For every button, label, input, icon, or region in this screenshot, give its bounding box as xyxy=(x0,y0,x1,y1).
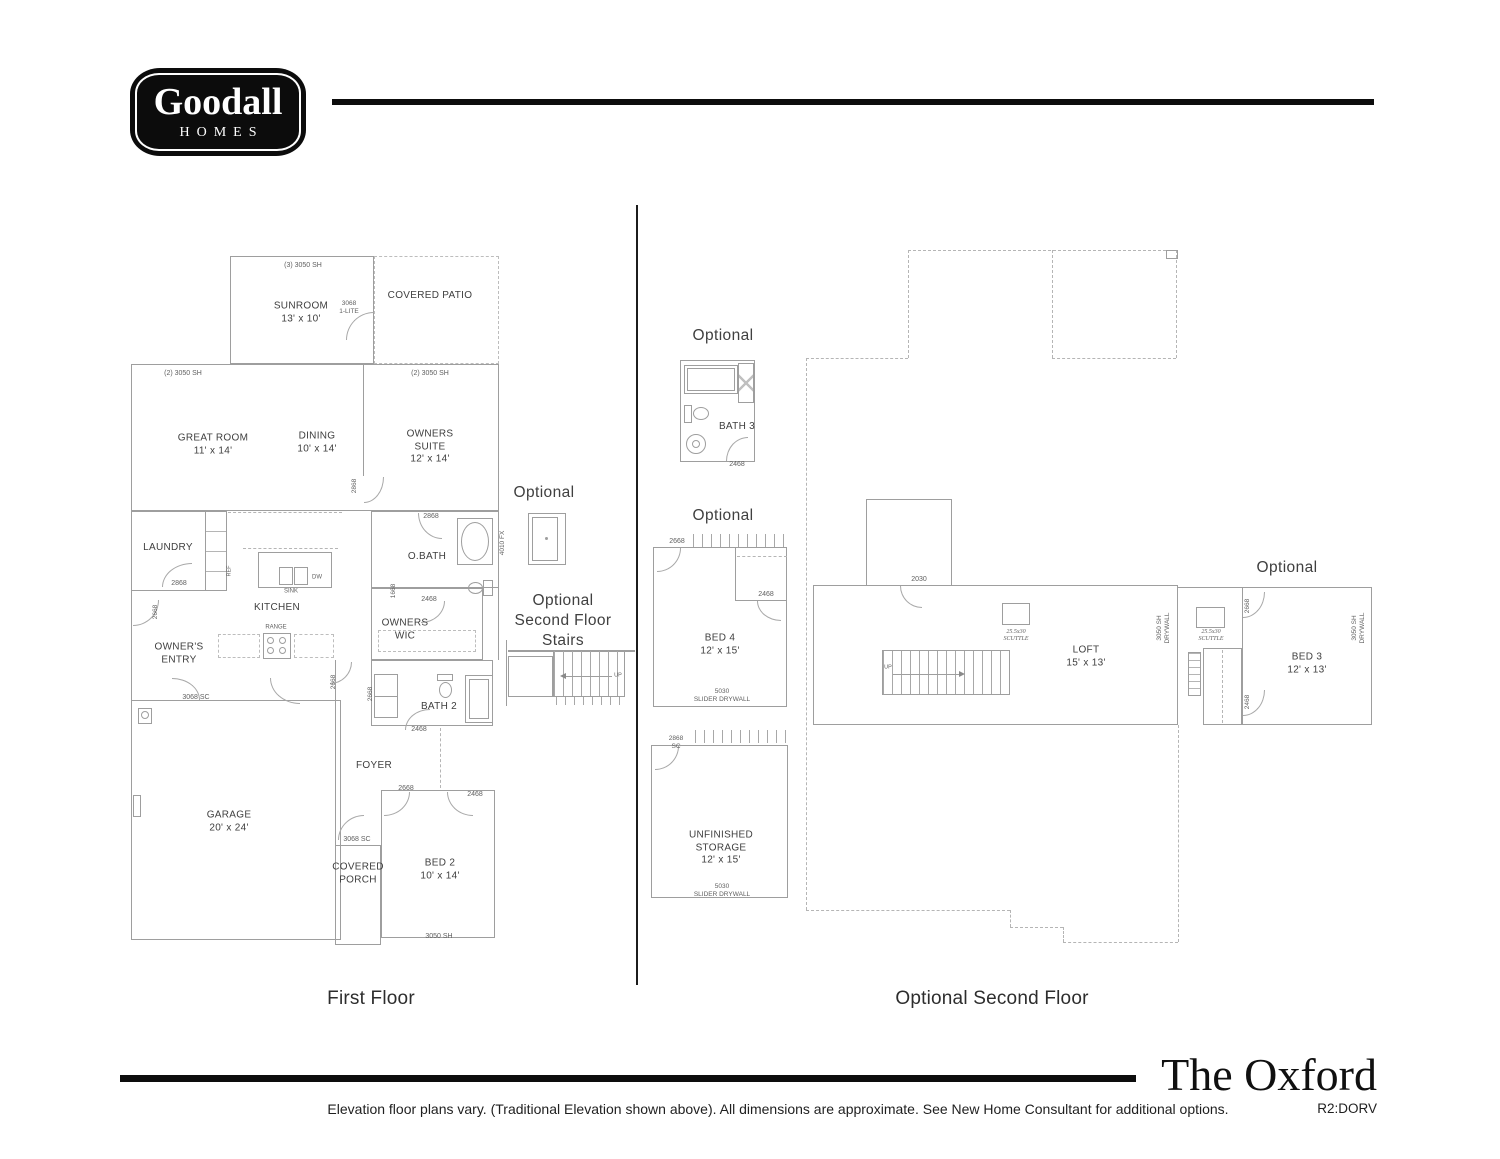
room-name: COVERED xyxy=(332,862,384,875)
scuttle-size: 25.5x30 xyxy=(1198,629,1223,636)
roof-outline xyxy=(1010,927,1063,928)
room-name: OWNER'S xyxy=(154,642,203,655)
burner-icon xyxy=(267,647,274,654)
water-heater-circle xyxy=(141,711,149,719)
closet-rod-line xyxy=(1222,650,1223,723)
slider-size: 5030 xyxy=(694,688,750,696)
linen-shelf-line xyxy=(374,696,398,697)
roof-outline xyxy=(908,250,909,358)
ceiling-break-line xyxy=(228,512,342,513)
disclaimer-text: Elevation floor plans vary. (Traditional… xyxy=(327,1101,1228,1117)
room-dims: 12' x 13' xyxy=(1287,664,1326,677)
burner-icon xyxy=(267,637,274,644)
scuttle-label: 25.5x30 SCUTTLE xyxy=(1198,629,1223,643)
note-line: Optional xyxy=(515,591,612,611)
window-label: (2) 3050 SH xyxy=(411,370,449,378)
door-label: 3068 1-LITE xyxy=(339,300,359,316)
room-dims: 12' x 15' xyxy=(700,645,739,658)
door-label: 2668 xyxy=(1244,599,1252,613)
first-floor-caption: First Floor xyxy=(327,988,415,1010)
roof-outline xyxy=(806,358,807,910)
optional-stairs-note: Optional Second Floor Stairs xyxy=(515,591,612,651)
room-label-bed4: BED 4 12' x 15' xyxy=(700,633,739,658)
room-name: BED 4 xyxy=(700,633,739,646)
door-label: 2868 xyxy=(423,513,439,521)
roof-outline xyxy=(806,358,908,359)
room-name: BATH 3 xyxy=(719,421,755,434)
window-label: (3) 3050 SH xyxy=(284,262,322,270)
slider-size: 5030 xyxy=(694,883,750,891)
room-dims: 13' x 10' xyxy=(274,313,328,326)
room-label-foyer: FOYER xyxy=(356,760,392,773)
room-dims: 11' x 14' xyxy=(178,445,248,458)
door-label: 2668 xyxy=(367,687,375,701)
slider-label: 5030 SLIDER DRYWALL xyxy=(694,883,750,899)
room-dims: 10' x 14' xyxy=(420,870,459,883)
header-rule xyxy=(332,99,1374,105)
plan-divider-line xyxy=(636,205,638,985)
wall-covered-porch xyxy=(335,845,381,945)
door-label: 2668 xyxy=(398,785,414,793)
door-size: 2868 xyxy=(669,735,683,743)
room-name: LOFT xyxy=(1066,645,1105,658)
floor-plan-sheet: Goodall HOMES xyxy=(0,0,1500,1159)
roof-outline xyxy=(1052,250,1053,358)
drywall-window-label: 3050 SH DRYWALL xyxy=(1351,612,1367,643)
door-label: 2868 xyxy=(351,479,359,493)
cabinet-column xyxy=(205,511,227,591)
door-label: 2030 xyxy=(911,576,927,584)
room-name: GREAT ROOM xyxy=(178,433,248,446)
footer-rule xyxy=(120,1075,1136,1082)
door-label: 2468 xyxy=(1244,695,1252,709)
roof-outline xyxy=(1063,927,1064,942)
window-label: 4010 FX xyxy=(499,531,507,556)
roof-outline xyxy=(1052,358,1176,359)
room-name: BED 3 xyxy=(1287,652,1326,665)
linen-cabinet xyxy=(738,363,754,403)
optional-bath3-label: Optional xyxy=(693,327,754,345)
room-name: COVERED PATIO xyxy=(388,290,473,303)
tub-basin-icon xyxy=(469,679,489,719)
wall-loft-closet xyxy=(866,499,952,586)
second-floor-caption: Optional Second Floor xyxy=(895,988,1088,1010)
door-label: 2468 xyxy=(421,596,437,604)
window-size: 3050 SH xyxy=(1156,612,1164,643)
room-label-covered-porch: COVERED PORCH xyxy=(332,862,384,887)
door-label: 2668 xyxy=(330,675,338,689)
door-label: 2868 SC xyxy=(669,735,683,751)
room-name: ENTRY xyxy=(154,654,203,667)
scuttle-hatch xyxy=(1002,603,1030,625)
appliance-label-sink: SINK xyxy=(284,588,298,595)
counter-left xyxy=(218,634,260,658)
room-label-kitchen: KITCHEN xyxy=(254,602,300,615)
plan-title: The Oxford xyxy=(1161,1048,1377,1101)
optional-shower-label: Optional xyxy=(514,484,575,502)
room-label-owners-entry: OWNER'S ENTRY xyxy=(154,642,203,667)
appliance-label-ref: REF xyxy=(227,566,234,577)
room-label-garage: GARAGE 20' x 24' xyxy=(207,810,252,835)
window-hatch xyxy=(1188,652,1201,696)
room-label-owners-suite: OWNERS SUITE 12' x 14' xyxy=(407,428,454,466)
stair-up-label: UP xyxy=(614,673,622,680)
door-label: 1668 xyxy=(390,584,398,598)
room-name: BATH 2 xyxy=(421,701,457,714)
window-note: DRYWALL xyxy=(1359,612,1367,643)
scuttle-text: SCUTTLE xyxy=(1198,636,1223,643)
sink-basin-right xyxy=(294,567,308,585)
optional-bed4-label: Optional xyxy=(693,507,754,525)
stair-treads xyxy=(882,650,1010,695)
room-label-bed3: BED 3 12' x 13' xyxy=(1287,652,1326,677)
room-label-sunroom: SUNROOM 13' x 10' xyxy=(274,301,328,326)
burner-icon xyxy=(279,647,286,654)
stair-arrow-icon xyxy=(959,671,965,677)
door-label: 2468 xyxy=(729,461,745,469)
room-name: OWNERS xyxy=(407,428,454,441)
room-label-owners-wic: OWNERS WIC xyxy=(382,618,429,643)
window-note: DRYWALL xyxy=(1164,612,1172,643)
wall-left-outer xyxy=(131,591,132,700)
wall-bed4 xyxy=(653,547,787,707)
room-name: UNFINISHED xyxy=(689,829,753,842)
room-dims: 15' x 13' xyxy=(1066,657,1105,670)
stair-landing xyxy=(508,656,553,697)
closet-shelf xyxy=(737,556,787,557)
room-label-owners-bath: O.BATH xyxy=(408,551,446,564)
scuttle-label: 25.5x30 SCUTTLE xyxy=(1003,629,1028,643)
sink-drain-icon xyxy=(692,440,700,448)
room-name: PORCH xyxy=(332,874,384,887)
stair-tick-row xyxy=(556,697,620,705)
scuttle-size: 25.5x30 xyxy=(1003,629,1028,636)
roof-outline xyxy=(806,910,1010,911)
roof-outline xyxy=(1178,725,1179,942)
counter-overhang xyxy=(243,548,338,549)
counter-right xyxy=(294,634,334,658)
appliance-label-range: RANGE xyxy=(265,624,286,631)
toilet-tank-icon xyxy=(684,405,692,423)
shower-drain-icon xyxy=(545,537,548,540)
room-dims: 10' x 14' xyxy=(297,443,336,456)
door-size: 3068 xyxy=(339,300,359,308)
door-type: 1-LITE xyxy=(339,308,359,316)
door-label: 2468 xyxy=(467,791,483,799)
note-line: Stairs xyxy=(515,631,612,651)
door-label: 2668 xyxy=(669,538,685,546)
wall-storage xyxy=(651,745,788,898)
room-label-storage: UNFINISHED STORAGE 12' x 15' xyxy=(689,829,753,867)
door-label: 2468 xyxy=(411,726,427,734)
room-name: STORAGE xyxy=(689,842,753,855)
foyer-cased-opening xyxy=(440,728,441,788)
toilet-tank-icon xyxy=(437,674,453,681)
scuttle-text: SCUTTLE xyxy=(1003,636,1028,643)
door-label: 3068 SC xyxy=(182,694,209,702)
door-label: 2868 xyxy=(171,580,187,588)
stair-up-label: UP xyxy=(884,665,892,672)
window-label: (2) 3050 SH xyxy=(164,370,202,378)
room-name: SUITE xyxy=(407,441,454,454)
brand-name: Goodall xyxy=(154,83,283,121)
room-label-bath2: BATH 2 xyxy=(421,701,457,714)
room-name: O.BATH xyxy=(408,551,446,564)
note-line: Second Floor xyxy=(515,611,612,631)
wall-stair-side xyxy=(498,588,499,660)
room-name: FOYER xyxy=(356,760,392,773)
room-label-loft: LOFT 15' x 13' xyxy=(1066,645,1105,670)
room-label-laundry: LAUNDRY xyxy=(143,542,193,555)
wall-covered-patio xyxy=(374,256,499,364)
appliance-label-dw: DW xyxy=(312,574,322,581)
drywall-window-label: 3050 SH DRYWALL xyxy=(1156,612,1172,643)
slider-label: 5030 SLIDER DRYWALL xyxy=(694,688,750,704)
revision-code: R2:DORV xyxy=(1317,1101,1377,1116)
chimney-chase xyxy=(1166,250,1178,259)
roof-outline xyxy=(1063,942,1178,943)
room-dims: 12' x 15' xyxy=(689,854,753,867)
slider-type: SLIDER DRYWALL xyxy=(694,696,750,704)
room-name: WIC xyxy=(382,630,429,643)
railing-ticks xyxy=(695,730,791,743)
stair-direction-line xyxy=(566,676,612,677)
room-label-great-room: GREAT ROOM 11' x 14' xyxy=(178,433,248,458)
burner-icon xyxy=(279,637,286,644)
roof-outline xyxy=(908,250,1176,251)
room-name: KITCHEN xyxy=(254,602,300,615)
room-label-bath3: BATH 3 xyxy=(719,421,755,434)
toilet-bowl-icon xyxy=(468,582,483,594)
goodall-homes-logo: Goodall HOMES xyxy=(130,68,306,156)
slider-type: SLIDER DRYWALL xyxy=(694,891,750,899)
garage-side-window xyxy=(133,795,141,817)
roof-outline xyxy=(1010,910,1011,927)
room-label-bed2: BED 2 10' x 14' xyxy=(420,858,459,883)
room-dims: 20' x 24' xyxy=(207,822,252,835)
room-name: DINING xyxy=(297,431,336,444)
room-label-covered-patio: COVERED PATIO xyxy=(388,290,473,303)
door-label: 2468 xyxy=(758,591,774,599)
room-name: GARAGE xyxy=(207,810,252,823)
toilet-bowl-icon xyxy=(439,682,452,698)
toilet-tank-icon xyxy=(483,580,493,596)
brand-sub: HOMES xyxy=(172,125,263,141)
room-name: OWNERS xyxy=(382,618,429,631)
roof-outline xyxy=(1176,250,1177,358)
door-type: SC xyxy=(669,743,683,751)
toilet-bowl-icon xyxy=(693,407,709,420)
tub-basin-icon xyxy=(461,522,489,561)
door-label: 3068 SC xyxy=(343,836,370,844)
wall-suite-partition xyxy=(363,364,364,476)
window-size: 3050 SH xyxy=(1351,612,1359,643)
stair-arrow-icon xyxy=(560,673,566,679)
sink-basin-left xyxy=(279,567,293,585)
room-label-dining: DINING 10' x 14' xyxy=(297,431,336,456)
room-dims: 12' x 14' xyxy=(407,453,454,466)
room-name: SUNROOM xyxy=(274,301,328,314)
room-name: BED 2 xyxy=(420,858,459,871)
door-label: 2668 xyxy=(152,605,160,619)
window-label: 3050 SH xyxy=(425,933,452,941)
tub-basin-icon xyxy=(687,368,735,391)
optional-bed3-label: Optional xyxy=(1257,559,1318,577)
stair-stub-wall xyxy=(506,640,507,706)
stair-direction-line xyxy=(893,674,959,675)
scuttle-hatch xyxy=(1196,607,1225,628)
room-name: LAUNDRY xyxy=(143,542,193,555)
wall-bed3-stub xyxy=(1178,587,1242,588)
railing-ticks xyxy=(693,534,791,547)
closet-wall xyxy=(735,548,736,600)
